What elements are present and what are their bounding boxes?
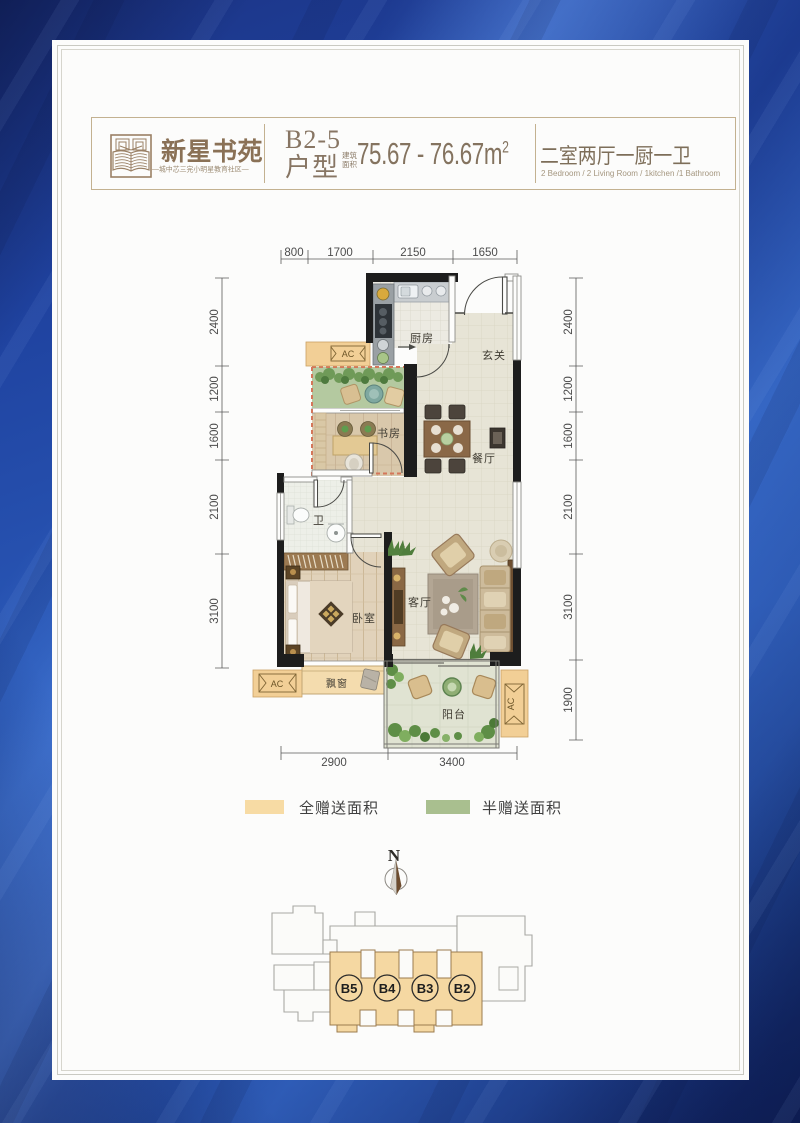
svg-text:B3: B3 [417,981,434,996]
svg-text:餐厅: 餐厅 [472,451,496,465]
svg-text:2400: 2400 [209,309,221,335]
svg-text:玄关: 玄关 [482,348,506,362]
svg-text:厨房: 厨房 [410,332,434,345]
svg-text:N: N [388,846,401,865]
svg-text:2400: 2400 [563,309,575,335]
svg-text:1600: 1600 [209,423,221,449]
svg-text:2100: 2100 [563,494,575,520]
svg-text:全赠送面积: 全赠送面积 [299,799,379,817]
svg-text:卫: 卫 [313,515,325,527]
svg-text:书房: 书房 [377,427,401,440]
svg-text:2100: 2100 [209,494,221,520]
svg-text:客厅: 客厅 [408,595,432,609]
svg-text:B4: B4 [379,981,396,996]
svg-text:1700: 1700 [327,247,353,259]
svg-text:B5: B5 [341,981,358,996]
svg-text:1650: 1650 [472,247,498,259]
svg-text:阳台: 阳台 [442,707,466,721]
svg-text:3100: 3100 [209,598,221,624]
svg-text:2900: 2900 [321,757,347,769]
svg-text:1600: 1600 [563,423,575,449]
svg-text:800: 800 [284,247,303,259]
svg-text:飘窗: 飘窗 [326,677,348,690]
svg-text:AC: AC [271,679,284,689]
svg-text:卧室: 卧室 [352,611,376,625]
svg-text:1200: 1200 [209,376,221,402]
svg-text:3400: 3400 [439,757,465,769]
svg-text:AC: AC [342,349,355,359]
svg-text:3100: 3100 [563,594,575,620]
svg-text:B2: B2 [454,981,471,996]
svg-text:半赠送面积: 半赠送面积 [482,800,562,817]
svg-text:AC: AC [506,697,516,710]
svg-text:1200: 1200 [563,376,575,402]
svg-text:1900: 1900 [563,687,575,713]
svg-text:2150: 2150 [400,247,426,259]
